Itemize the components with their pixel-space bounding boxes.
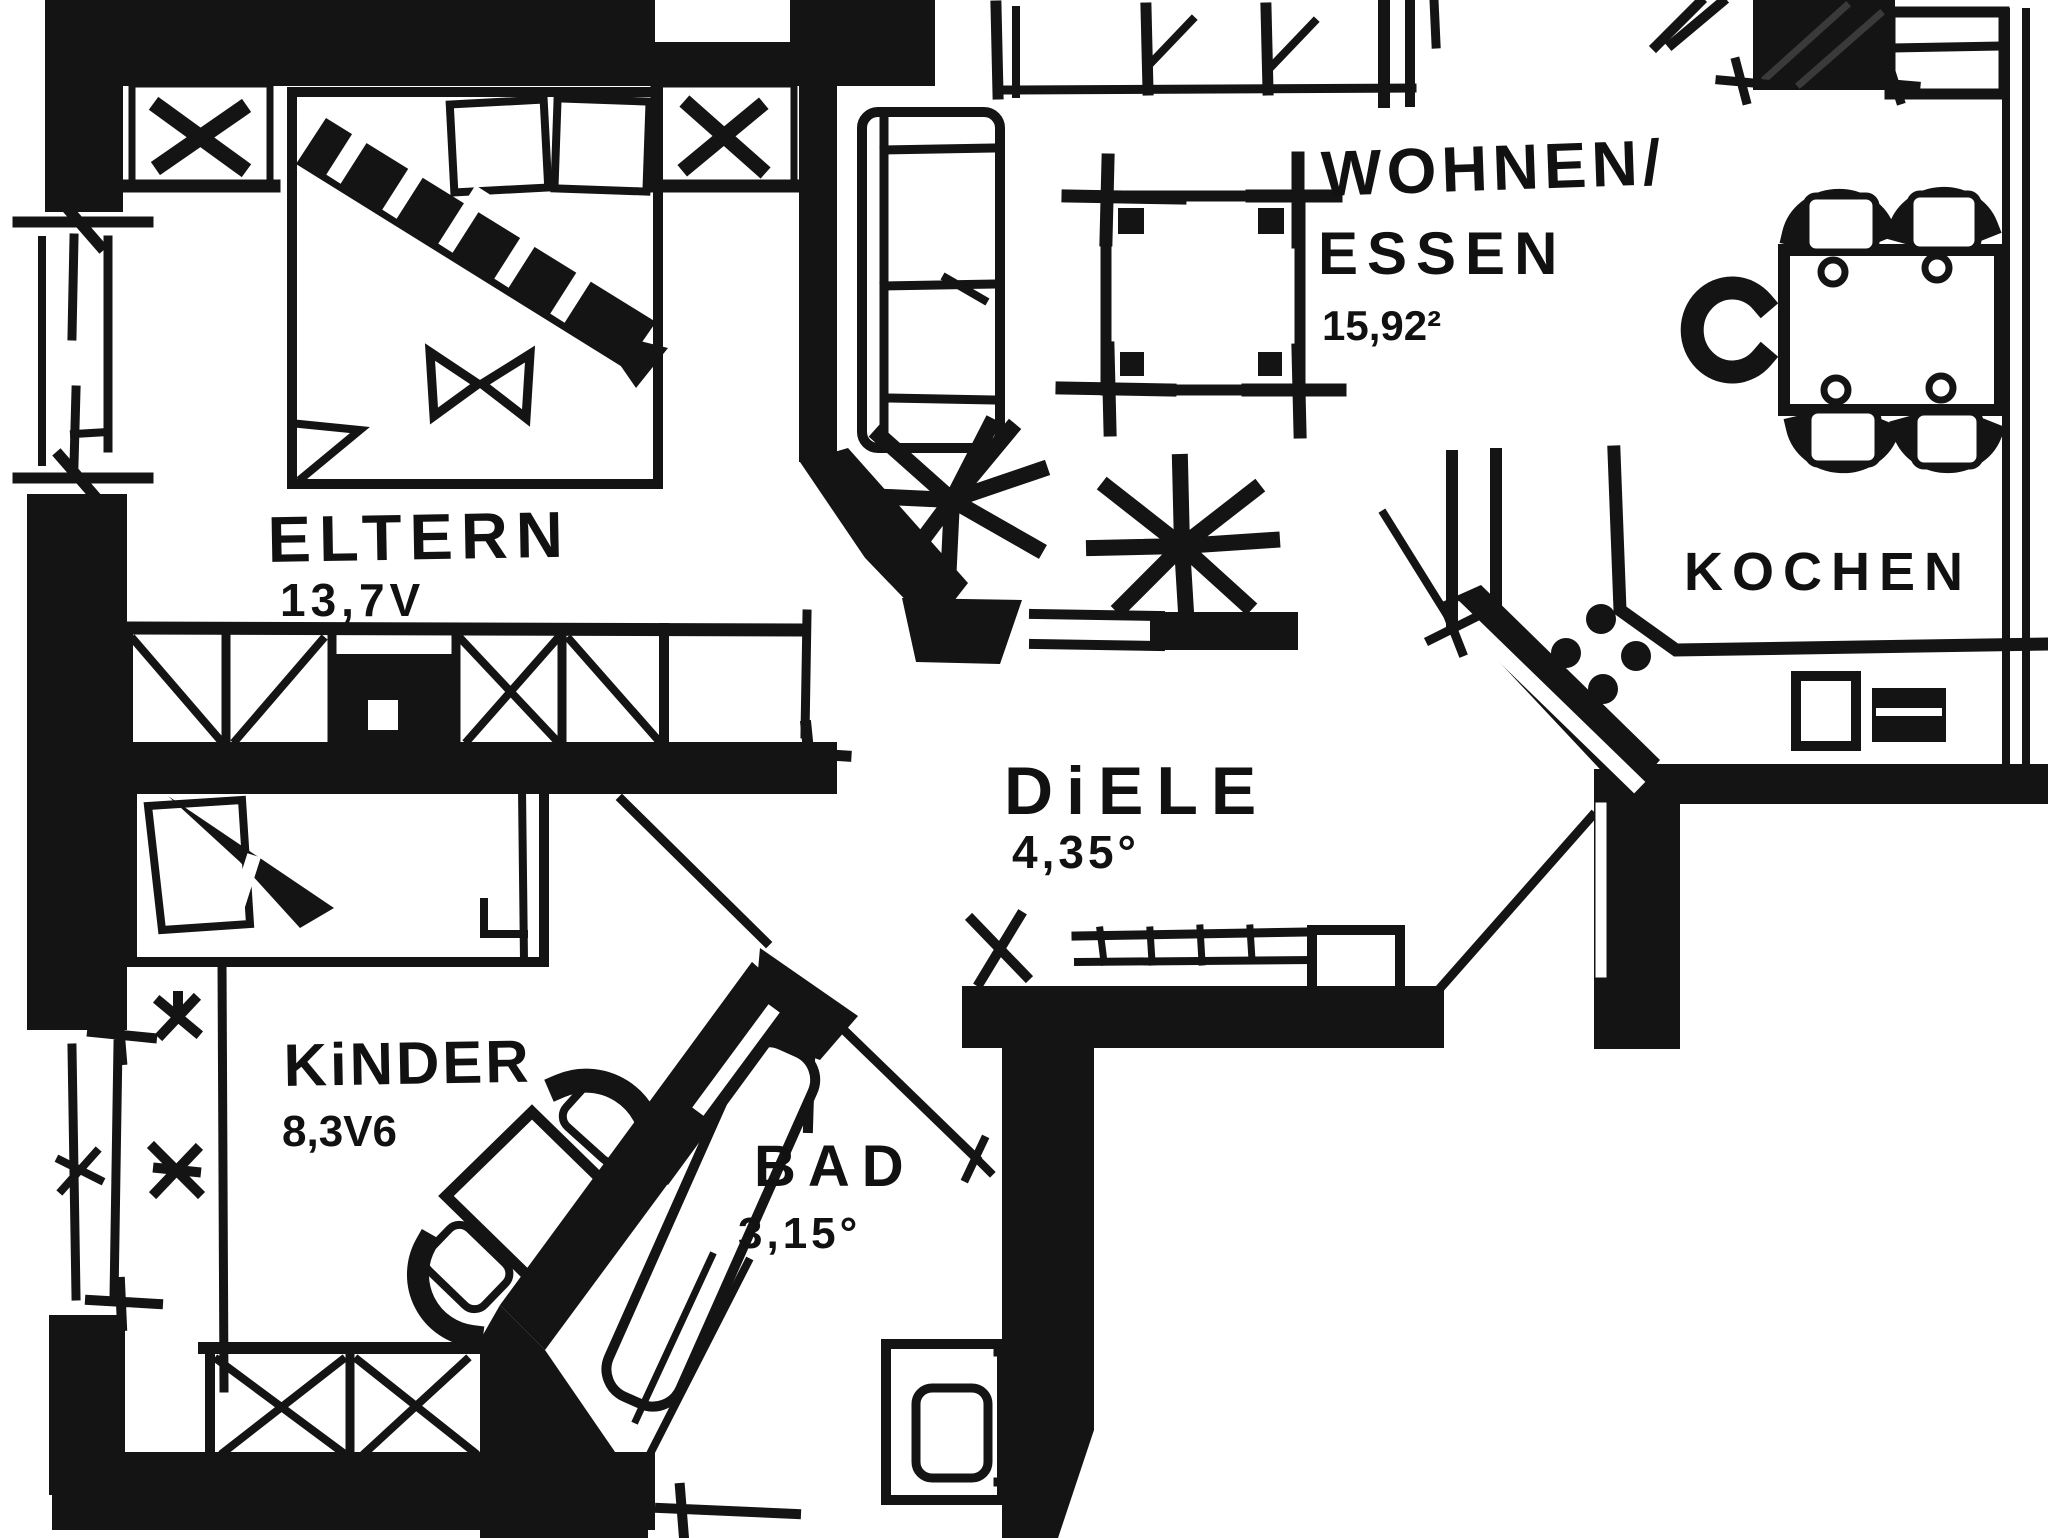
svg-text:BAD: BAD <box>754 1134 916 1199</box>
svg-text:8,3V6: 8,3V6 <box>282 1107 397 1156</box>
svg-text:3,15°: 3,15° <box>738 1209 861 1258</box>
svg-text:KOCHEN: KOCHEN <box>1684 542 1972 602</box>
svg-text:ELTERN: ELTERN <box>267 498 571 576</box>
svg-text:15,92²: 15,92² <box>1322 302 1441 349</box>
svg-text:WOHNEN/: WOHNEN/ <box>1320 126 1667 210</box>
svg-text:DiELE: DiELE <box>1004 753 1269 829</box>
svg-text:13,7V: 13,7V <box>280 574 425 626</box>
svg-text:KiNDER: KiNDER <box>283 1028 532 1099</box>
svg-text:4,35°: 4,35° <box>1012 826 1140 878</box>
svg-text:ESSEN: ESSEN <box>1318 220 1566 287</box>
